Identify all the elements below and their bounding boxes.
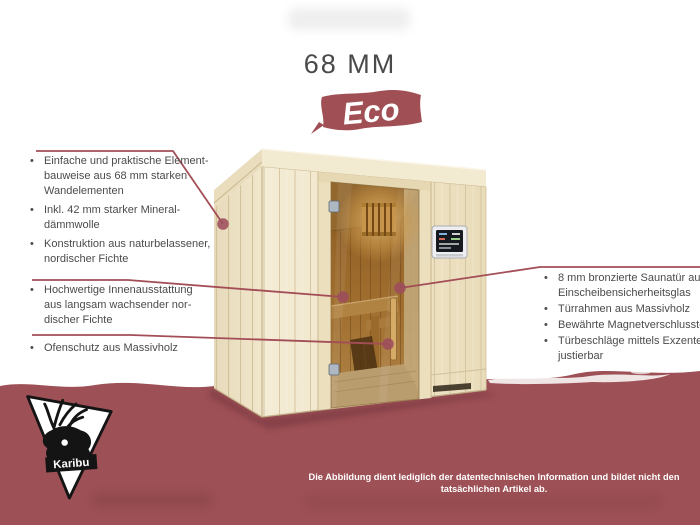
feature-line: Einscheibensicherheitsglas [558,286,700,301]
bullet-dot [544,271,558,301]
feature-line: Bewährte Magnetverschlusstechnik [558,318,700,333]
feature-line: Ofenschutz aus Massivholz [44,341,178,356]
feature-line: Türrahmen aus Massivholz [558,302,690,317]
feature-line: Einfache und praktische Element- [44,154,208,169]
feature-list-left-bottom: Ofenschutz aus Massivholz [30,341,230,360]
feature-line: bauweise aus 68 mm starken [44,169,208,184]
bullet-dot [30,203,44,233]
feature-item: Hochwertige Innenausstattung aus langsam… [30,283,230,328]
feature-list-left-top: Einfache und praktische Element- bauweis… [30,154,230,271]
feature-line: Hochwertige Innenausstattung [44,283,193,298]
bullet-dot [544,302,558,317]
feature-line: aus langsam wachsender nor- [44,298,193,313]
bullet-dot [30,341,44,356]
bullet-dot [30,237,44,267]
feature-line: Konstruktion aus naturbelassener, [44,237,210,252]
feature-item: 8 mm bronzierte Saunatür aus Einscheiben… [544,271,700,301]
bullet-dot [544,318,558,333]
feature-item: Konstruktion aus naturbelassener, nordis… [30,237,230,267]
feature-item: Inkl. 42 mm starker Mineral- dämmwolle [30,203,230,233]
feature-line: dämmwolle [44,218,180,233]
feature-line: nordischer Fichte [44,252,210,267]
bullet-dot [544,334,558,364]
feature-list-left-mid: Hochwertige Innenausstattung aus langsam… [30,283,230,332]
feature-list-right: 8 mm bronzierte Saunatür aus Einscheiben… [544,271,700,368]
feature-item: Ofenschutz aus Massivholz [30,341,230,356]
leader-dot-door [394,282,406,294]
infographic-page: Karibu Eco 68 MM Einfache und p [0,0,700,525]
feature-item: Bewährte Magnetverschlusstechnik [544,318,700,333]
leader-dot-ofenschutz [382,338,394,350]
feature-line: justierbar [558,349,700,364]
feature-line: Wandelementen [44,184,208,199]
feature-line: Türbeschläge mittels Exzenter [558,334,700,349]
feature-line: discher Fichte [44,313,193,328]
bullet-dot [30,154,44,199]
bullet-dot [30,283,44,328]
feature-item: Türrahmen aus Massivholz [544,302,700,317]
feature-line: 8 mm bronzierte Saunatür aus [558,271,700,286]
footer-disclaimer: Die Abbildung dient lediglich der datent… [288,471,700,495]
feature-item: Einfache und praktische Element- bauweis… [30,154,230,199]
feature-line: Inkl. 42 mm starker Mineral- [44,203,180,218]
feature-item: Türbeschläge mittels Exzenter justierbar [544,334,700,364]
leader-dot-interior [337,291,349,303]
